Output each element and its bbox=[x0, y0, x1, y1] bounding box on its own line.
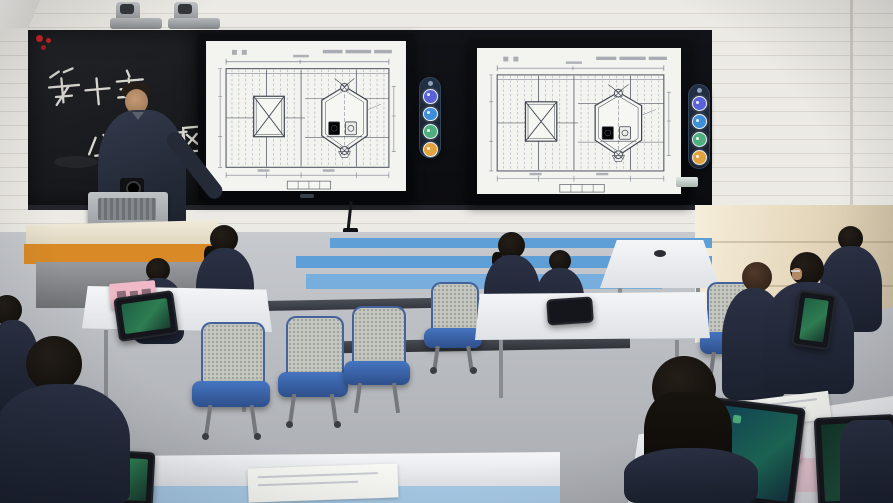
block-structural-drawing bbox=[206, 41, 406, 191]
camera-lens-icon bbox=[178, 4, 192, 14]
student-tablet-flat[interactable] bbox=[546, 296, 594, 325]
camera-base bbox=[168, 18, 220, 29]
chair-1 bbox=[192, 322, 270, 440]
papers-stack bbox=[247, 463, 398, 502]
ptz-camera-1 bbox=[110, 2, 164, 32]
annotation-tool-3-button[interactable] bbox=[423, 124, 438, 139]
toolbar-handle-icon[interactable] bbox=[697, 88, 702, 93]
left-display[interactable] bbox=[198, 33, 414, 201]
lectern-orange-band bbox=[24, 244, 212, 264]
wall-panel-line bbox=[695, 241, 893, 243]
camera-base bbox=[110, 18, 162, 29]
chair-3 bbox=[344, 306, 410, 416]
camera-lens-icon bbox=[120, 4, 134, 14]
chair-2 bbox=[278, 316, 348, 428]
device-vents bbox=[98, 198, 156, 220]
screen-home-button[interactable] bbox=[676, 177, 698, 187]
annotation-tool-3-button[interactable] bbox=[692, 132, 707, 147]
chair-center bbox=[424, 282, 482, 374]
annotation-tool-4-button[interactable] bbox=[423, 142, 438, 157]
left-slide-structural-drawing bbox=[206, 41, 406, 191]
wall-corner-line bbox=[850, 0, 853, 230]
bezel-logo-icon bbox=[300, 194, 314, 198]
annotation-tool-2-button[interactable] bbox=[692, 114, 707, 129]
toolbar-handle-icon[interactable] bbox=[428, 81, 433, 86]
student-tablet-1[interactable] bbox=[113, 290, 179, 342]
app-icon[interactable] bbox=[733, 415, 742, 424]
annotation-tool-1-button[interactable] bbox=[423, 89, 438, 104]
annotation-tool-4-button[interactable] bbox=[692, 150, 707, 165]
ptz-camera-2 bbox=[168, 2, 222, 32]
right-display[interactable] bbox=[468, 39, 690, 205]
block-structural-drawing bbox=[477, 48, 681, 194]
student-11-corner bbox=[840, 420, 893, 503]
left-annotation-toolbar bbox=[419, 77, 441, 158]
right-slide-structural-drawing bbox=[477, 48, 681, 194]
annotation-tool-2-button[interactable] bbox=[423, 107, 438, 122]
annotation-tool-1-button[interactable] bbox=[692, 96, 707, 111]
student-tablet-held[interactable] bbox=[791, 290, 836, 351]
desk-leg bbox=[499, 338, 503, 398]
desk-top bbox=[600, 240, 720, 288]
mouse[interactable] bbox=[654, 250, 666, 257]
right-group-desk bbox=[475, 292, 710, 344]
glasses-icon bbox=[791, 270, 800, 272]
classroom-photo: 第十章 分段 构图 bbox=[0, 0, 893, 503]
right-annotation-toolbar bbox=[688, 84, 710, 169]
